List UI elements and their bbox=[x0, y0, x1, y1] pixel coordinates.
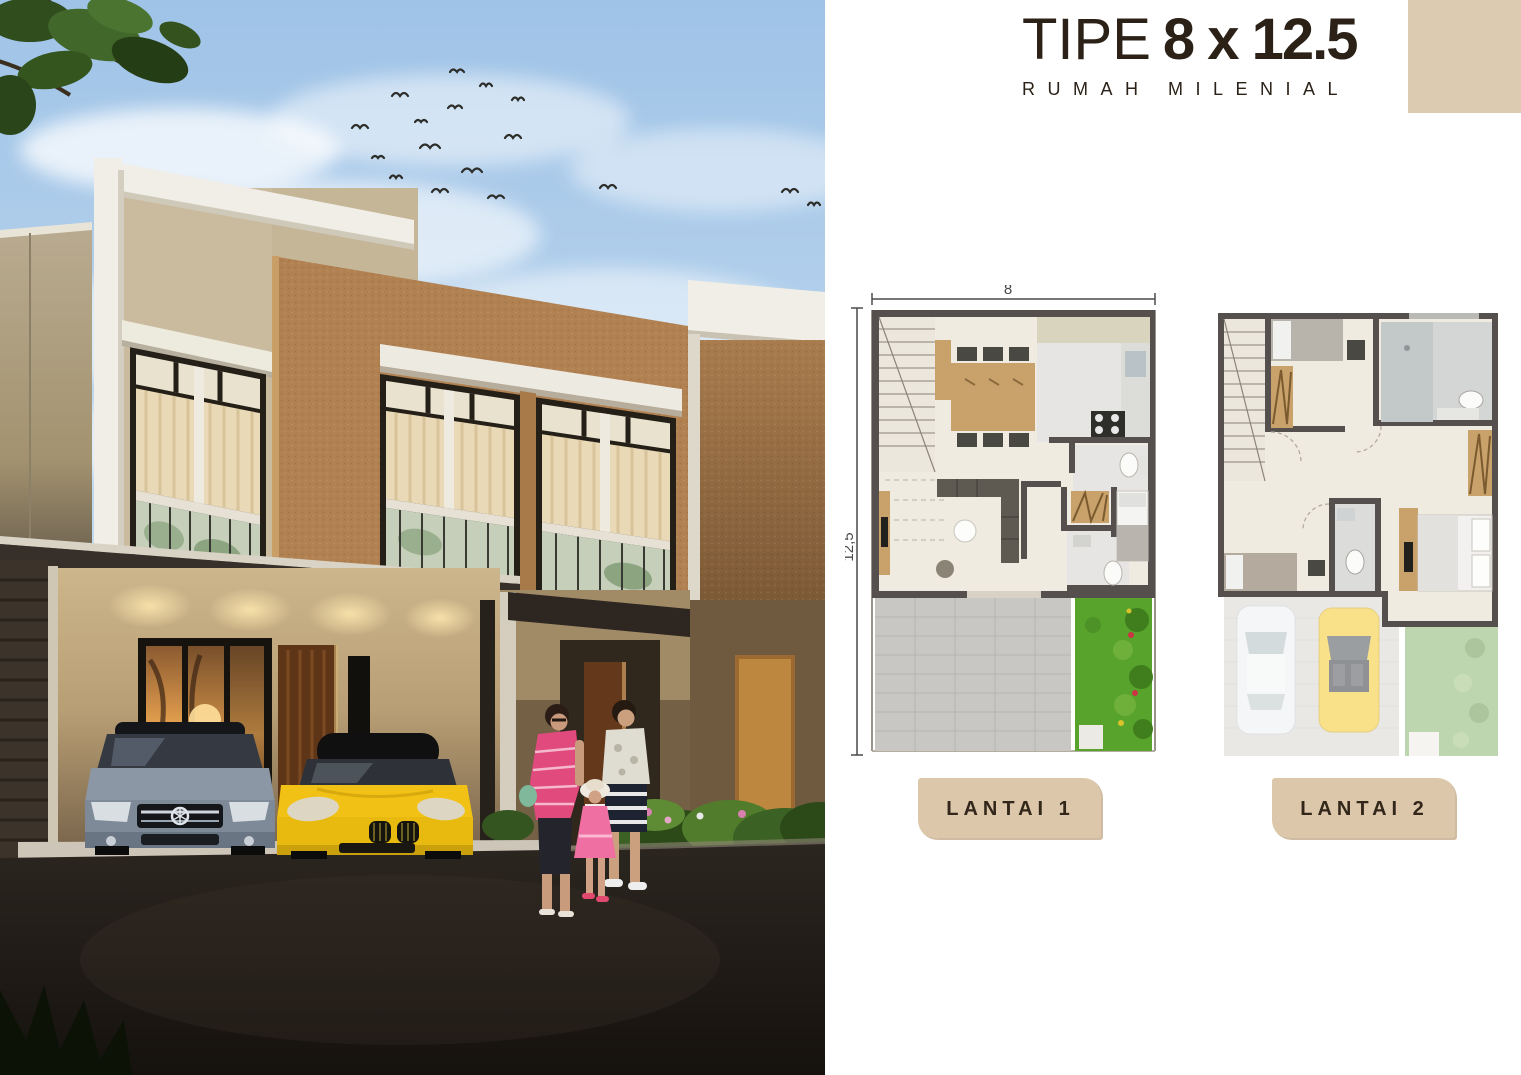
caption-lantai-2: LANTAI 2 bbox=[1272, 778, 1457, 840]
floor-plan-lantai-1: 8 12,5 bbox=[845, 285, 1157, 765]
dimension-width bbox=[872, 293, 1155, 305]
bathroom-1 bbox=[1120, 453, 1148, 477]
caption-lantai-1: LANTAI 1 bbox=[918, 778, 1103, 840]
height-label: 12,5 bbox=[845, 532, 857, 561]
title-type-label: TIPE bbox=[1022, 10, 1151, 71]
house-photo bbox=[0, 0, 825, 1075]
bedroom-bed bbox=[1117, 491, 1148, 561]
right-neighbour-parapet bbox=[688, 280, 825, 602]
title-size-value: 8 x 12.5 bbox=[1163, 10, 1357, 71]
master-bedroom bbox=[1399, 508, 1492, 591]
wardrobe-right bbox=[1468, 430, 1492, 496]
page-subtitle: RUMAH MILENIAL bbox=[1022, 79, 1382, 100]
garden bbox=[1075, 598, 1153, 751]
wardrobe bbox=[1071, 491, 1109, 523]
stairs bbox=[1224, 319, 1265, 481]
caption-lantai-2-label: LANTAI 2 bbox=[1300, 798, 1429, 821]
grey-car bbox=[85, 722, 275, 855]
page-title: TIPE 8 x 12.5 bbox=[1022, 10, 1382, 71]
left-neighbour-wall bbox=[0, 222, 92, 560]
caption-lantai-1-label: LANTAI 1 bbox=[946, 798, 1075, 821]
header: TIPE 8 x 12.5 RUMAH MILENIAL bbox=[1022, 10, 1382, 100]
slat-pillar bbox=[0, 560, 58, 860]
carport bbox=[875, 598, 1071, 751]
brochure-page: TIPE 8 x 12.5 RUMAH MILENIAL 8 12,5 bbox=[0, 0, 1521, 1075]
dimension-height bbox=[851, 308, 863, 755]
width-label: 8 bbox=[1004, 285, 1012, 298]
corner-accent-block bbox=[1408, 0, 1521, 113]
floor-plan-lantai-2 bbox=[1213, 308, 1503, 758]
